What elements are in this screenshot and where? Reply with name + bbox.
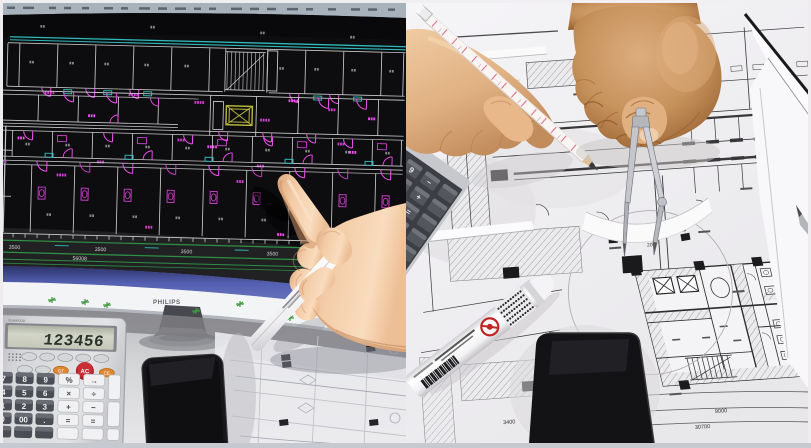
svg-text:+: + bbox=[66, 403, 71, 412]
svg-text:3500: 3500 bbox=[95, 247, 107, 253]
svg-text:.: . bbox=[43, 416, 45, 425]
svg-text:2: 2 bbox=[22, 402, 27, 411]
svg-text:123456: 123456 bbox=[42, 332, 105, 352]
svg-text:3500: 3500 bbox=[9, 245, 21, 251]
svg-text:3500: 3500 bbox=[181, 249, 193, 255]
svg-text:×: × bbox=[66, 389, 71, 398]
svg-text:→: → bbox=[90, 376, 98, 385]
svg-text:3: 3 bbox=[43, 402, 48, 411]
svg-text:=: = bbox=[66, 416, 71, 425]
svg-text:3400: 3400 bbox=[503, 419, 516, 426]
svg-text:PHILIPS: PHILIPS bbox=[153, 299, 181, 306]
svg-text:6: 6 bbox=[43, 389, 48, 398]
svg-text:SUNWOOD: SUNWOOD bbox=[8, 318, 26, 322]
svg-text:−: − bbox=[91, 403, 96, 412]
svg-text:8: 8 bbox=[22, 375, 27, 384]
svg-text:GT: GT bbox=[58, 368, 65, 373]
svg-text:5: 5 bbox=[22, 388, 27, 397]
svg-text:00: 00 bbox=[19, 415, 29, 424]
svg-text:9000: 9000 bbox=[715, 408, 728, 415]
svg-text:9: 9 bbox=[43, 375, 48, 384]
svg-text:3500: 3500 bbox=[267, 251, 279, 257]
svg-text:30700: 30700 bbox=[695, 424, 711, 431]
svg-text:=: = bbox=[91, 417, 96, 426]
svg-text:%: % bbox=[65, 376, 72, 385]
svg-text:CE: CE bbox=[104, 371, 110, 376]
